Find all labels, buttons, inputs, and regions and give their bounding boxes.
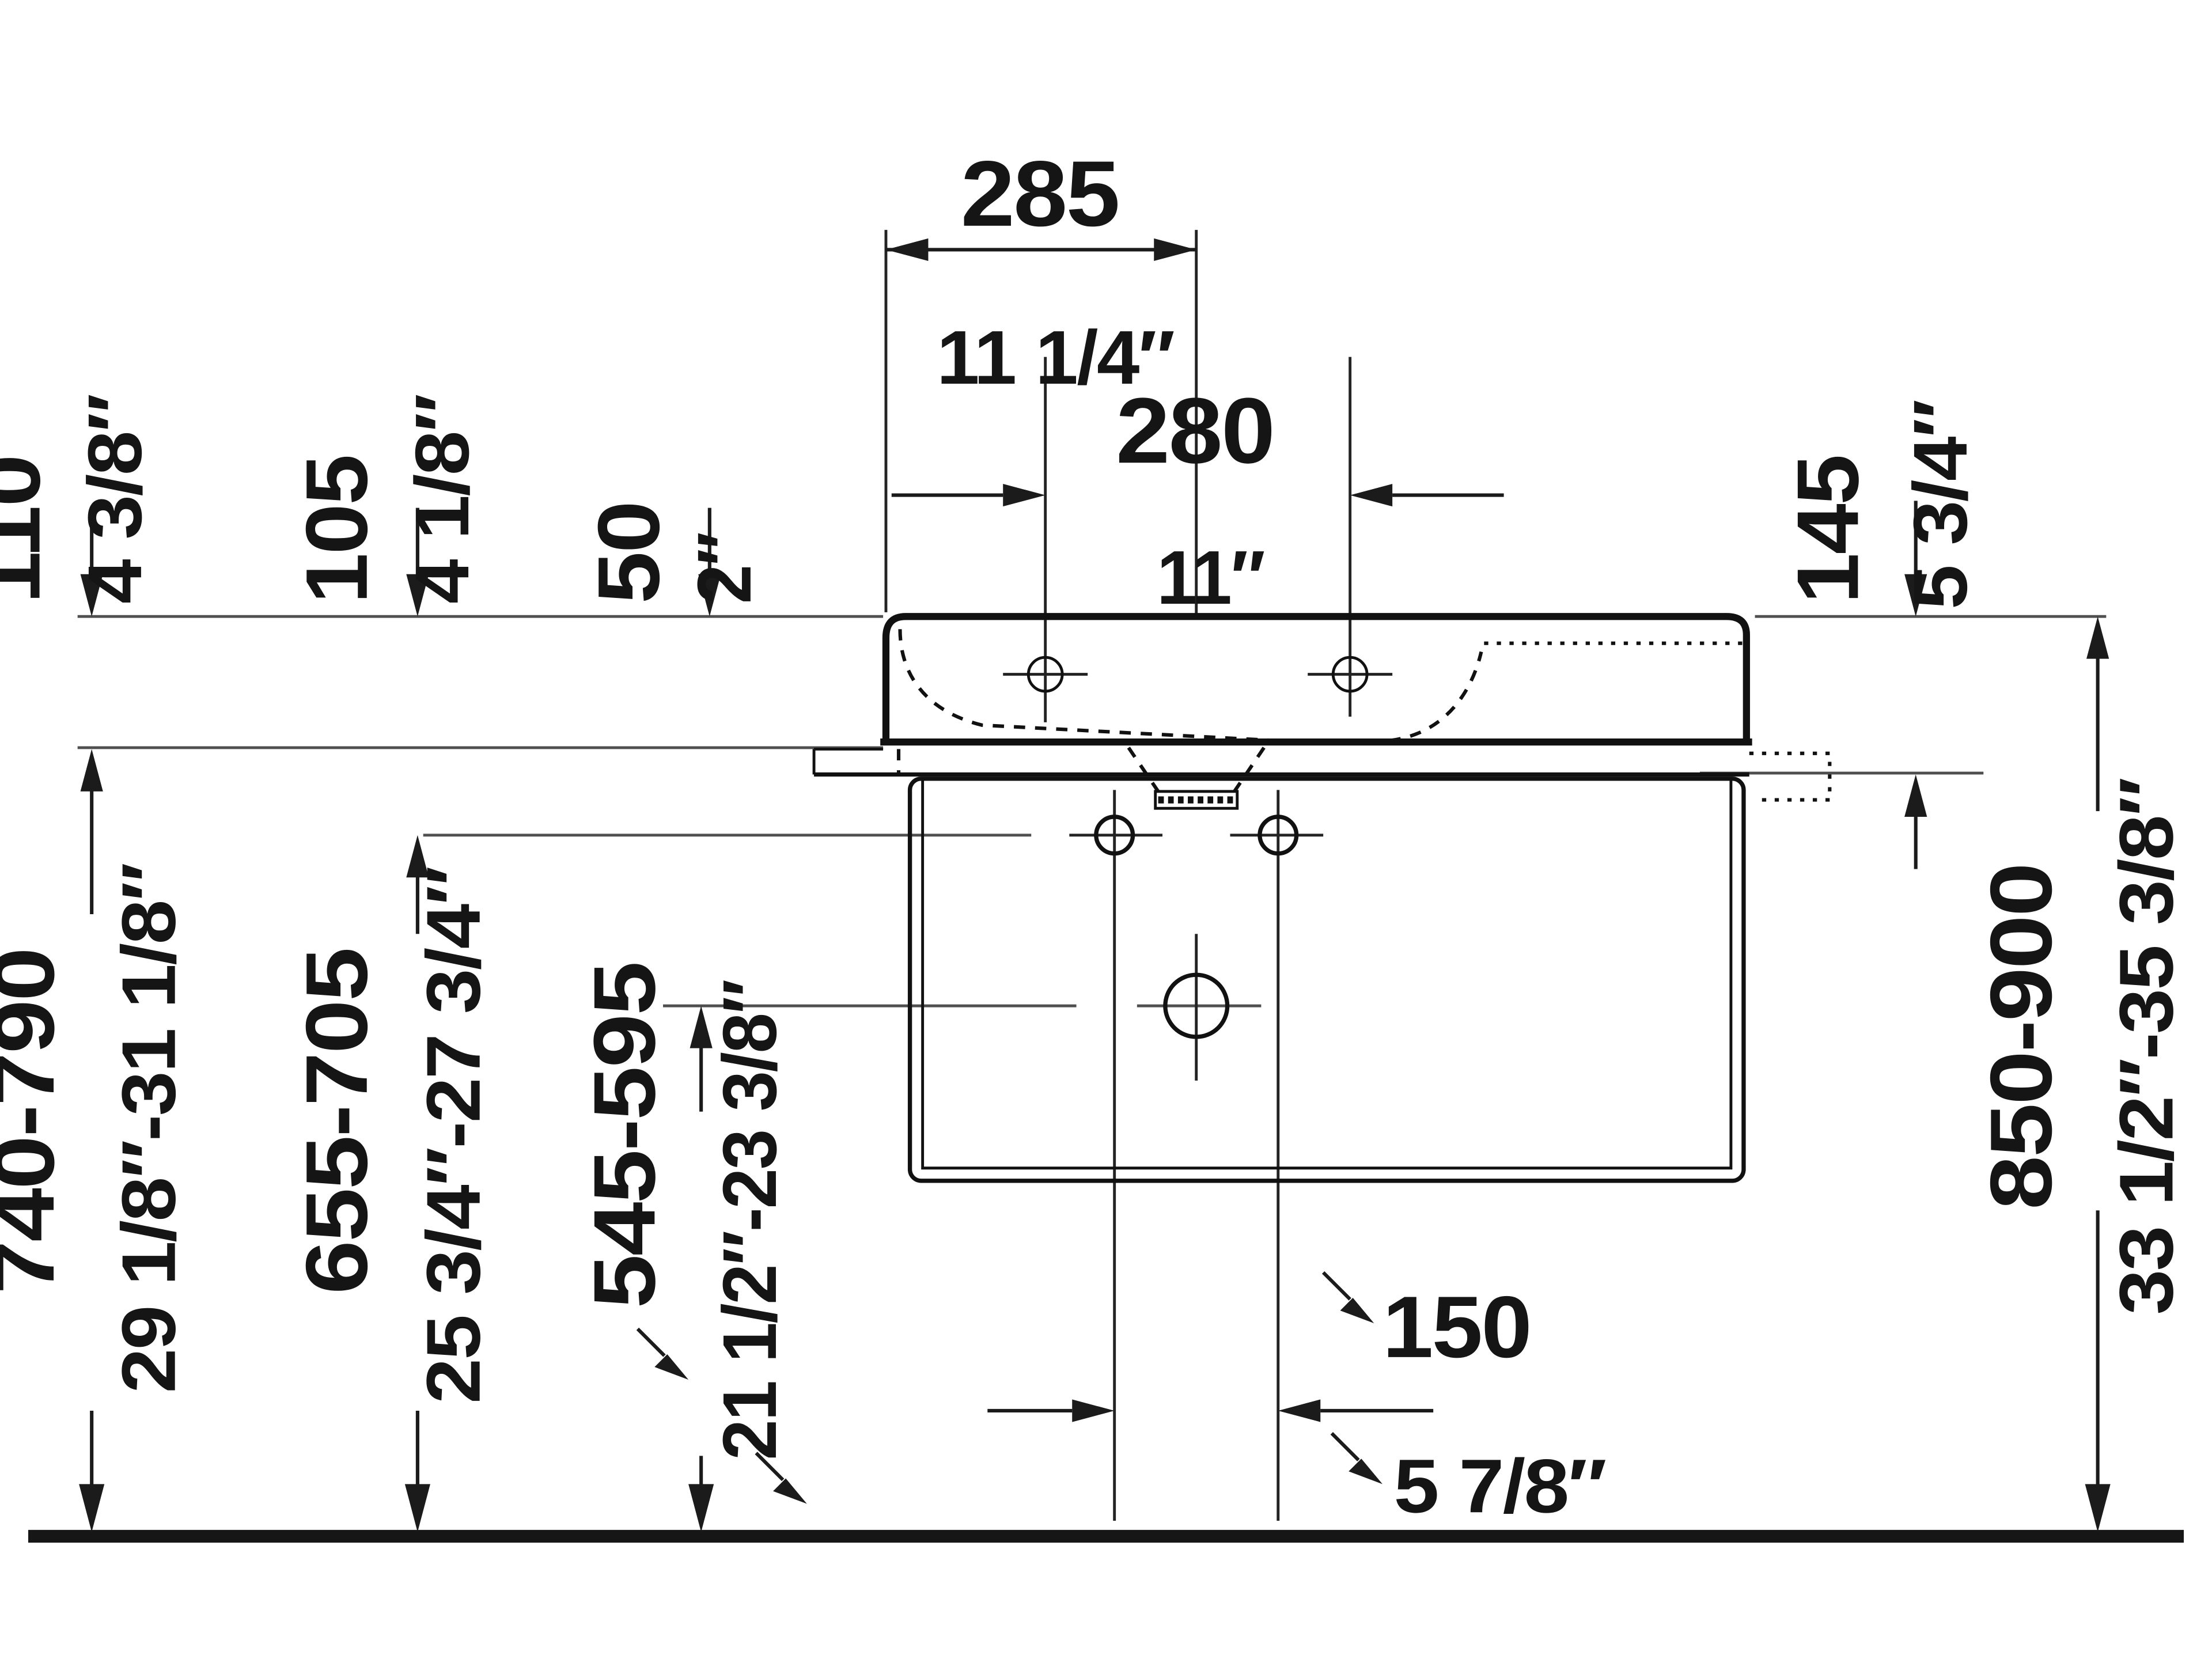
frame-inner (923, 779, 1731, 1168)
dim-285-mm-label: 285 (961, 142, 1119, 246)
leader-shaft (1323, 1272, 1350, 1300)
arrow-850-down (2085, 1484, 2111, 1532)
arrow-655-down (405, 1484, 430, 1532)
leader-arrow-545-inch (756, 1453, 807, 1503)
trap-hidden-funnel (1128, 748, 1264, 791)
dim-850-mm-label: 850-900 (1973, 864, 2070, 1210)
washbasin-technical-drawing: 285 11 1/4″ 280 11″ 110 4 3/8″ 105 4 1/8… (0, 0, 2212, 1659)
dimension-graphics (79, 238, 2111, 1532)
arrow-740-up (81, 749, 103, 791)
dim-850-in-label: 33 1/2″-35 3/8″ (2104, 779, 2189, 1315)
arrow-150-left (1072, 1399, 1114, 1422)
dim-110-mm-label: 110 (0, 456, 59, 604)
arrow-285-left (886, 238, 928, 261)
leader-arrow-150 (1323, 1272, 1374, 1323)
arrow-285-right (1154, 238, 1196, 261)
arrow-850-up (2086, 616, 2109, 658)
sink-outline (886, 616, 1747, 739)
arrow-545-down (688, 1484, 714, 1532)
dim-50-in-label: 2″ (682, 533, 767, 604)
console-plate (814, 749, 1830, 800)
leader-arrow-150-inch (1332, 1433, 1382, 1484)
leader-shaft (1332, 1433, 1359, 1460)
drain-tailpiece (1156, 791, 1237, 808)
dim-740-in-label: 29 1/8″-31 1/8″ (107, 864, 192, 1393)
dim-740-mm-label: 740-790 (0, 949, 73, 1294)
dim-655-in-label: 25 3/4″-27 3/4″ (411, 868, 497, 1404)
plate-left-edge (814, 749, 883, 774)
leader-head (1349, 1459, 1382, 1484)
dim-105-mm-label: 105 (289, 456, 386, 604)
leader-head (654, 1354, 688, 1380)
leader-head (1340, 1298, 1374, 1323)
leader-head (773, 1479, 807, 1504)
arrow-280-right (1350, 484, 1392, 506)
plate-hidden-bracket (1749, 753, 1830, 800)
frame-outer (910, 779, 1744, 1181)
dim-655-mm-label: 655-705 (289, 949, 386, 1294)
basin-hidden-contour-right (1389, 652, 1481, 740)
leader-arrow-545 (638, 1329, 688, 1380)
dim-280-mm-label: 280 (1116, 379, 1274, 483)
arrow-145-up (1904, 774, 1927, 816)
dim-545-mm-label: 545-595 (576, 963, 673, 1308)
dim-50-mm-label: 50 (581, 502, 678, 604)
arrow-740-down (79, 1484, 104, 1532)
leader-shaft (638, 1329, 665, 1356)
dim-150-mm-label: 150 (1382, 1279, 1531, 1376)
arrow-150-right (1278, 1399, 1320, 1422)
basin-hidden-contour-left (900, 629, 1277, 740)
mounting-frame (910, 779, 1744, 1181)
dim-145-in-label: 5 3/4″ (1898, 400, 1983, 609)
arrow-280-left (1003, 484, 1045, 506)
dim-110-in-label: 4 3/8″ (73, 395, 158, 604)
dim-145-mm-label: 145 (1779, 456, 1877, 604)
dim-280-in-label: 11″ (1157, 535, 1264, 620)
dim-105-in-label: 4 1/8″ (400, 395, 485, 604)
dim-150-in-label: 5 7/8″ (1394, 1444, 1605, 1529)
dim-545-in-label: 21 1/2″-23 3/8″ (707, 980, 793, 1460)
reference-lines (78, 230, 2107, 1521)
